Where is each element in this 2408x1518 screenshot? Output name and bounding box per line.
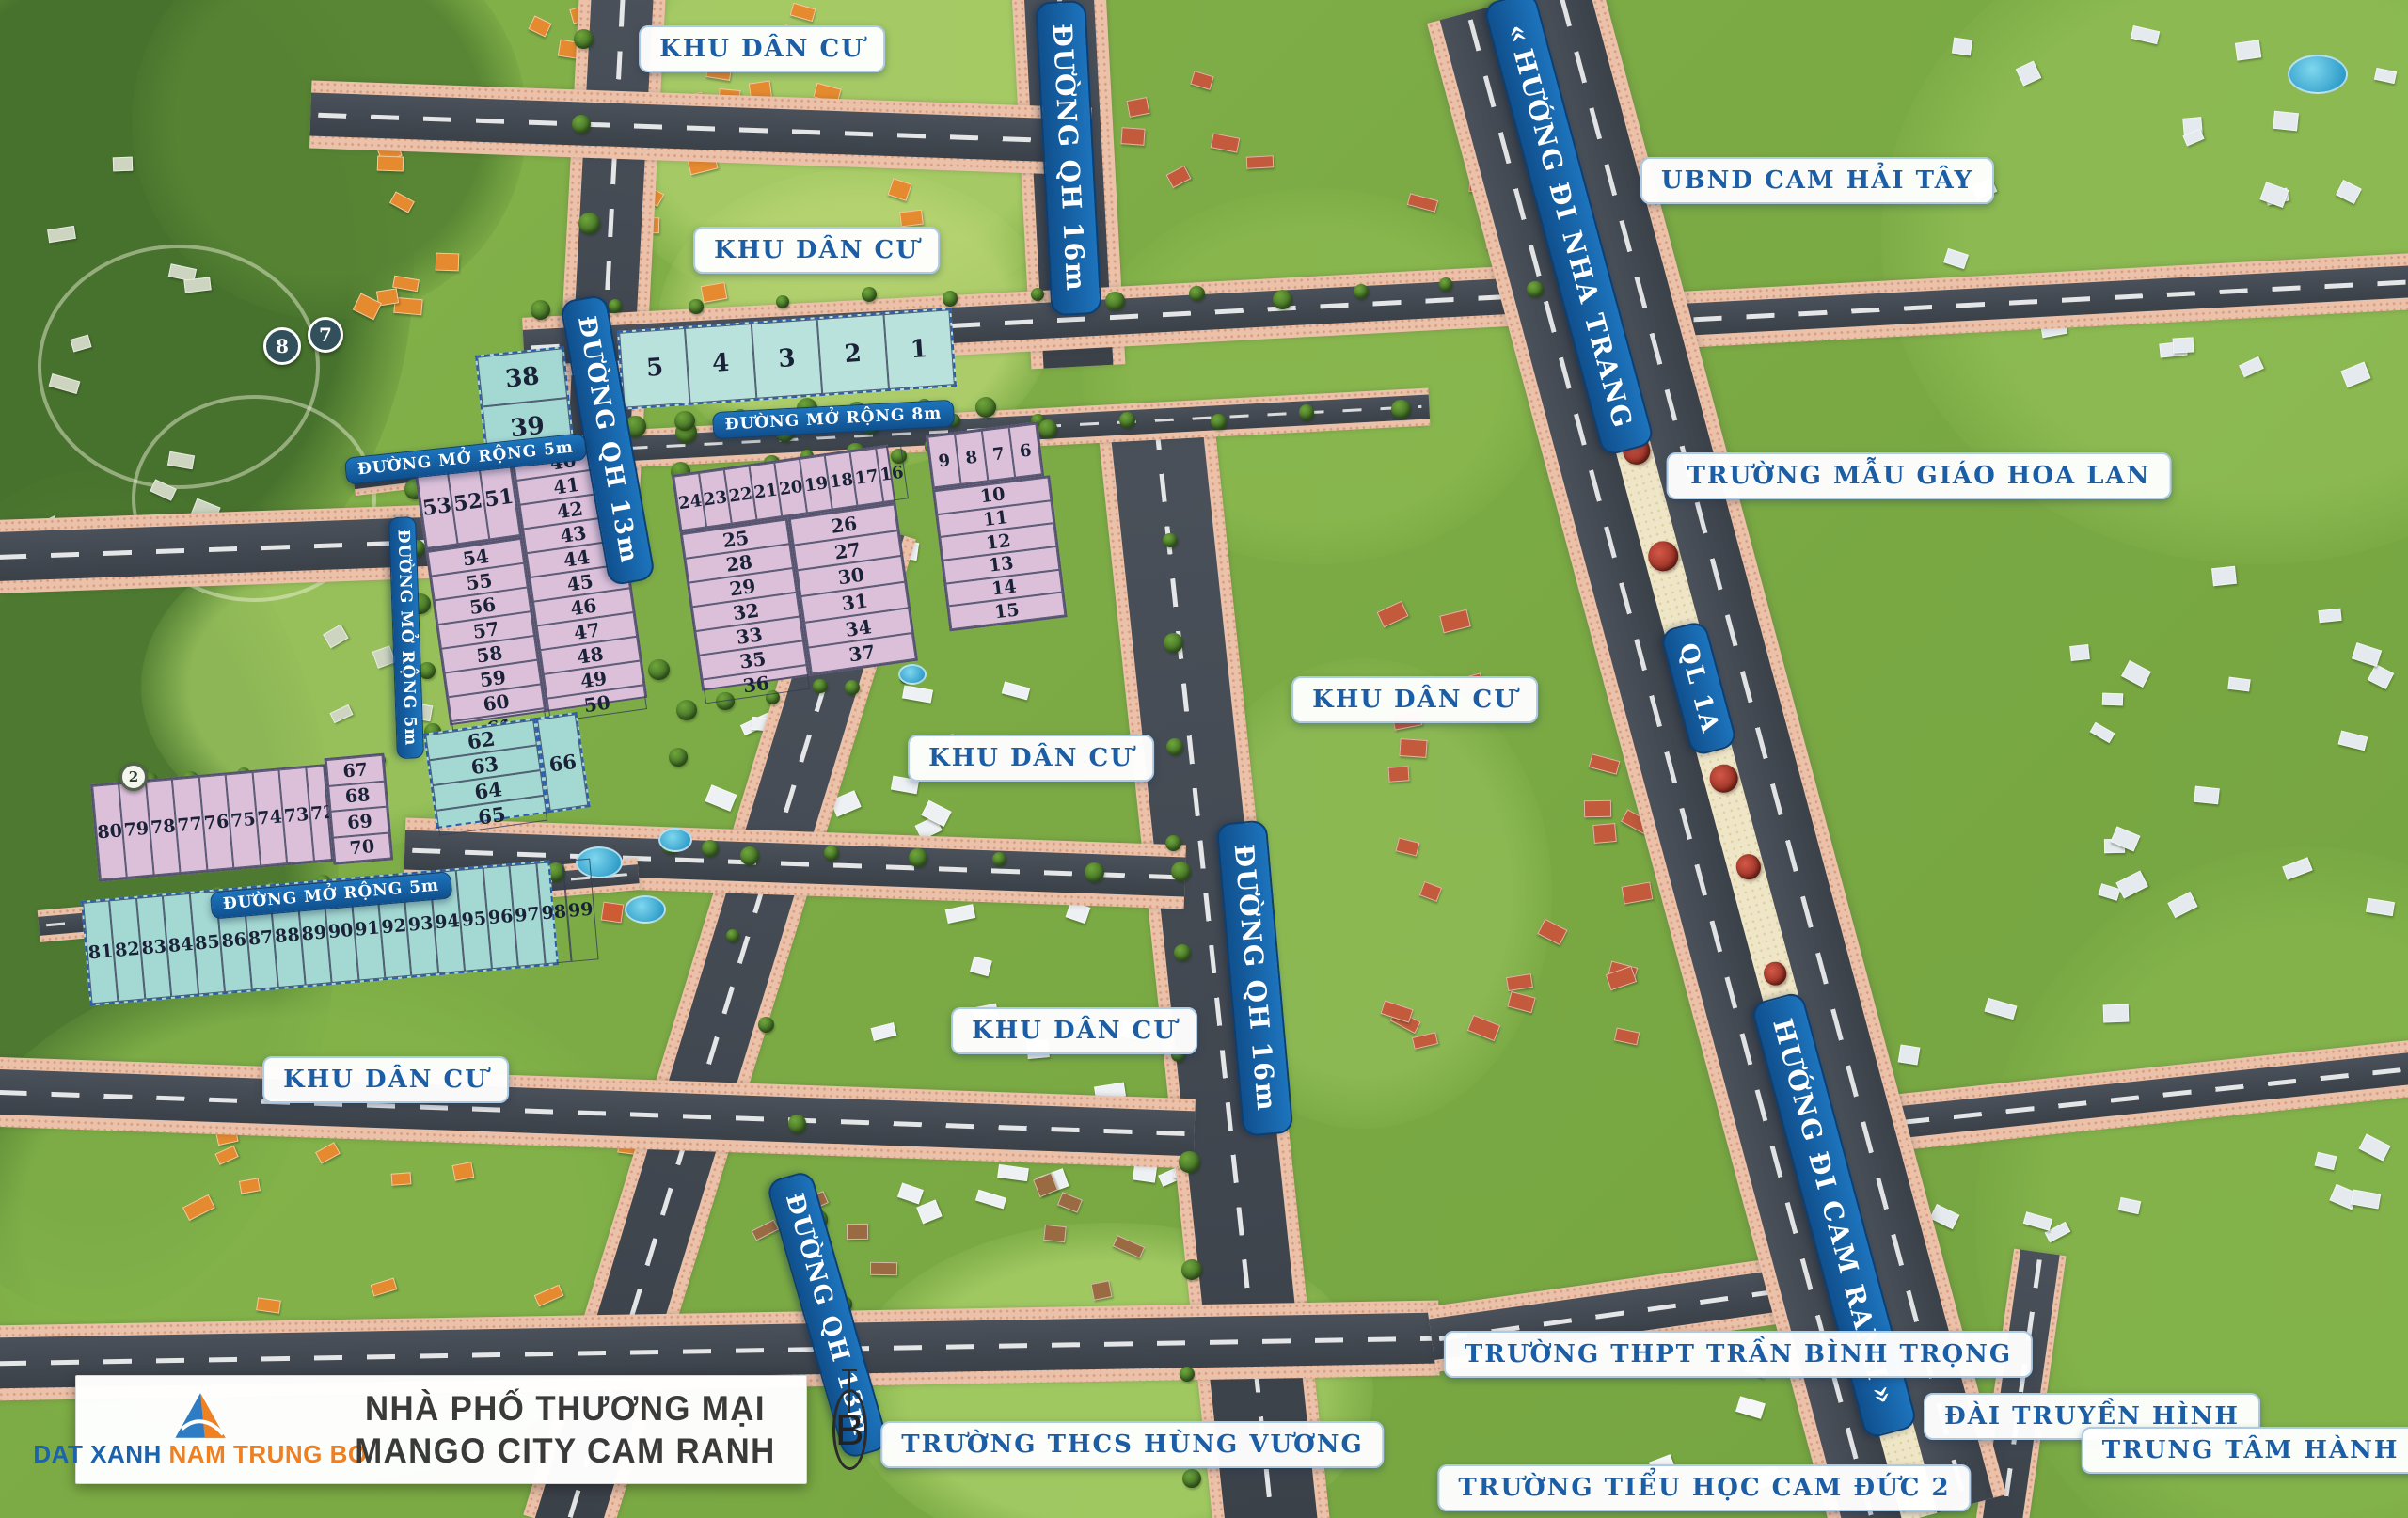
area-label-khu-dan-cu-4: KHU DÂN CƯ: [1291, 676, 1538, 723]
area-label-truong-mau-giao-hoa-lan: TRƯỜNG MẪU GIÁO HOA LAN: [1667, 452, 2172, 499]
chevron-down-icon: »: [1864, 1382, 1902, 1410]
area-label-ubnd-cam-hai-tay: UBND CAM HẢI TÂY: [1640, 157, 1994, 204]
numbered-markers: 782: [0, 0, 2408, 1518]
chevron-up-icon: «: [1499, 21, 1537, 49]
project-title-line2: MANGO CITY CAM RANH: [355, 1430, 775, 1472]
area-label-khu-dan-cu-2: KHU DÂN CƯ: [693, 227, 940, 274]
area-label-khu-dan-cu-6: KHU DÂN CƯ: [262, 1056, 509, 1103]
master-plan-map: 3839543215352515455565758596061404142434…: [0, 0, 2408, 1518]
area-label-trung-tam-hanh-chinh: TRUNG TÂM HÀNH CHÍNH: [2082, 1427, 2408, 1474]
area-label-khu-dan-cu-3: KHU DÂN CƯ: [908, 735, 1154, 782]
map-marker-8: 8: [263, 327, 301, 365]
area-label-khu-dan-cu-5: KHU DÂN CƯ: [951, 1007, 1197, 1054]
map-marker-7: 7: [308, 317, 343, 353]
road-label-text: ĐƯỜNG MỞ RỘNG 5m: [393, 529, 420, 746]
dat-xanh-logo-icon: [170, 1391, 230, 1440]
brand-part-1: DAT XANH: [33, 1440, 161, 1468]
brand-part-2: NAM TRUNG BO: [169, 1440, 368, 1468]
area-label-truong-thcs-hung-vuong: TRƯỜNG THCS HÙNG VƯƠNG: [880, 1421, 1384, 1468]
developer-name: DAT XANH NAM TRUNG BO: [33, 1440, 367, 1469]
project-title-line1: NHÀ PHỐ THƯƠNG MẠI: [355, 1387, 775, 1430]
area-label-truong-tieu-hoc-cam-duc-2: TRƯỜNG TIỂU HỌC CAM ĐỨC 2: [1437, 1464, 1971, 1511]
map-marker-2: 2: [119, 763, 148, 791]
developer-logo: DAT XANH NAM TRUNG BO: [97, 1391, 304, 1469]
legend-card: DAT XANH NAM TRUNG BO NHÀ PHỐ THƯƠNG MẠI…: [75, 1375, 807, 1484]
area-label-khu-dan-cu-1: KHU DÂN CƯ: [639, 25, 885, 72]
compass-north-indicator: B: [832, 1389, 867, 1470]
compass-letter: B: [835, 1404, 864, 1455]
road-label-text: ĐƯỜNG QH 16m: [1047, 23, 1092, 293]
project-title: NHÀ PHỐ THƯƠNG MẠI MANGO CITY CAM RANH: [355, 1387, 775, 1472]
area-label-truong-thpt-tran-binh-trong: TRƯỜNG THPT TRẦN BÌNH TRỌNG: [1444, 1331, 2033, 1378]
